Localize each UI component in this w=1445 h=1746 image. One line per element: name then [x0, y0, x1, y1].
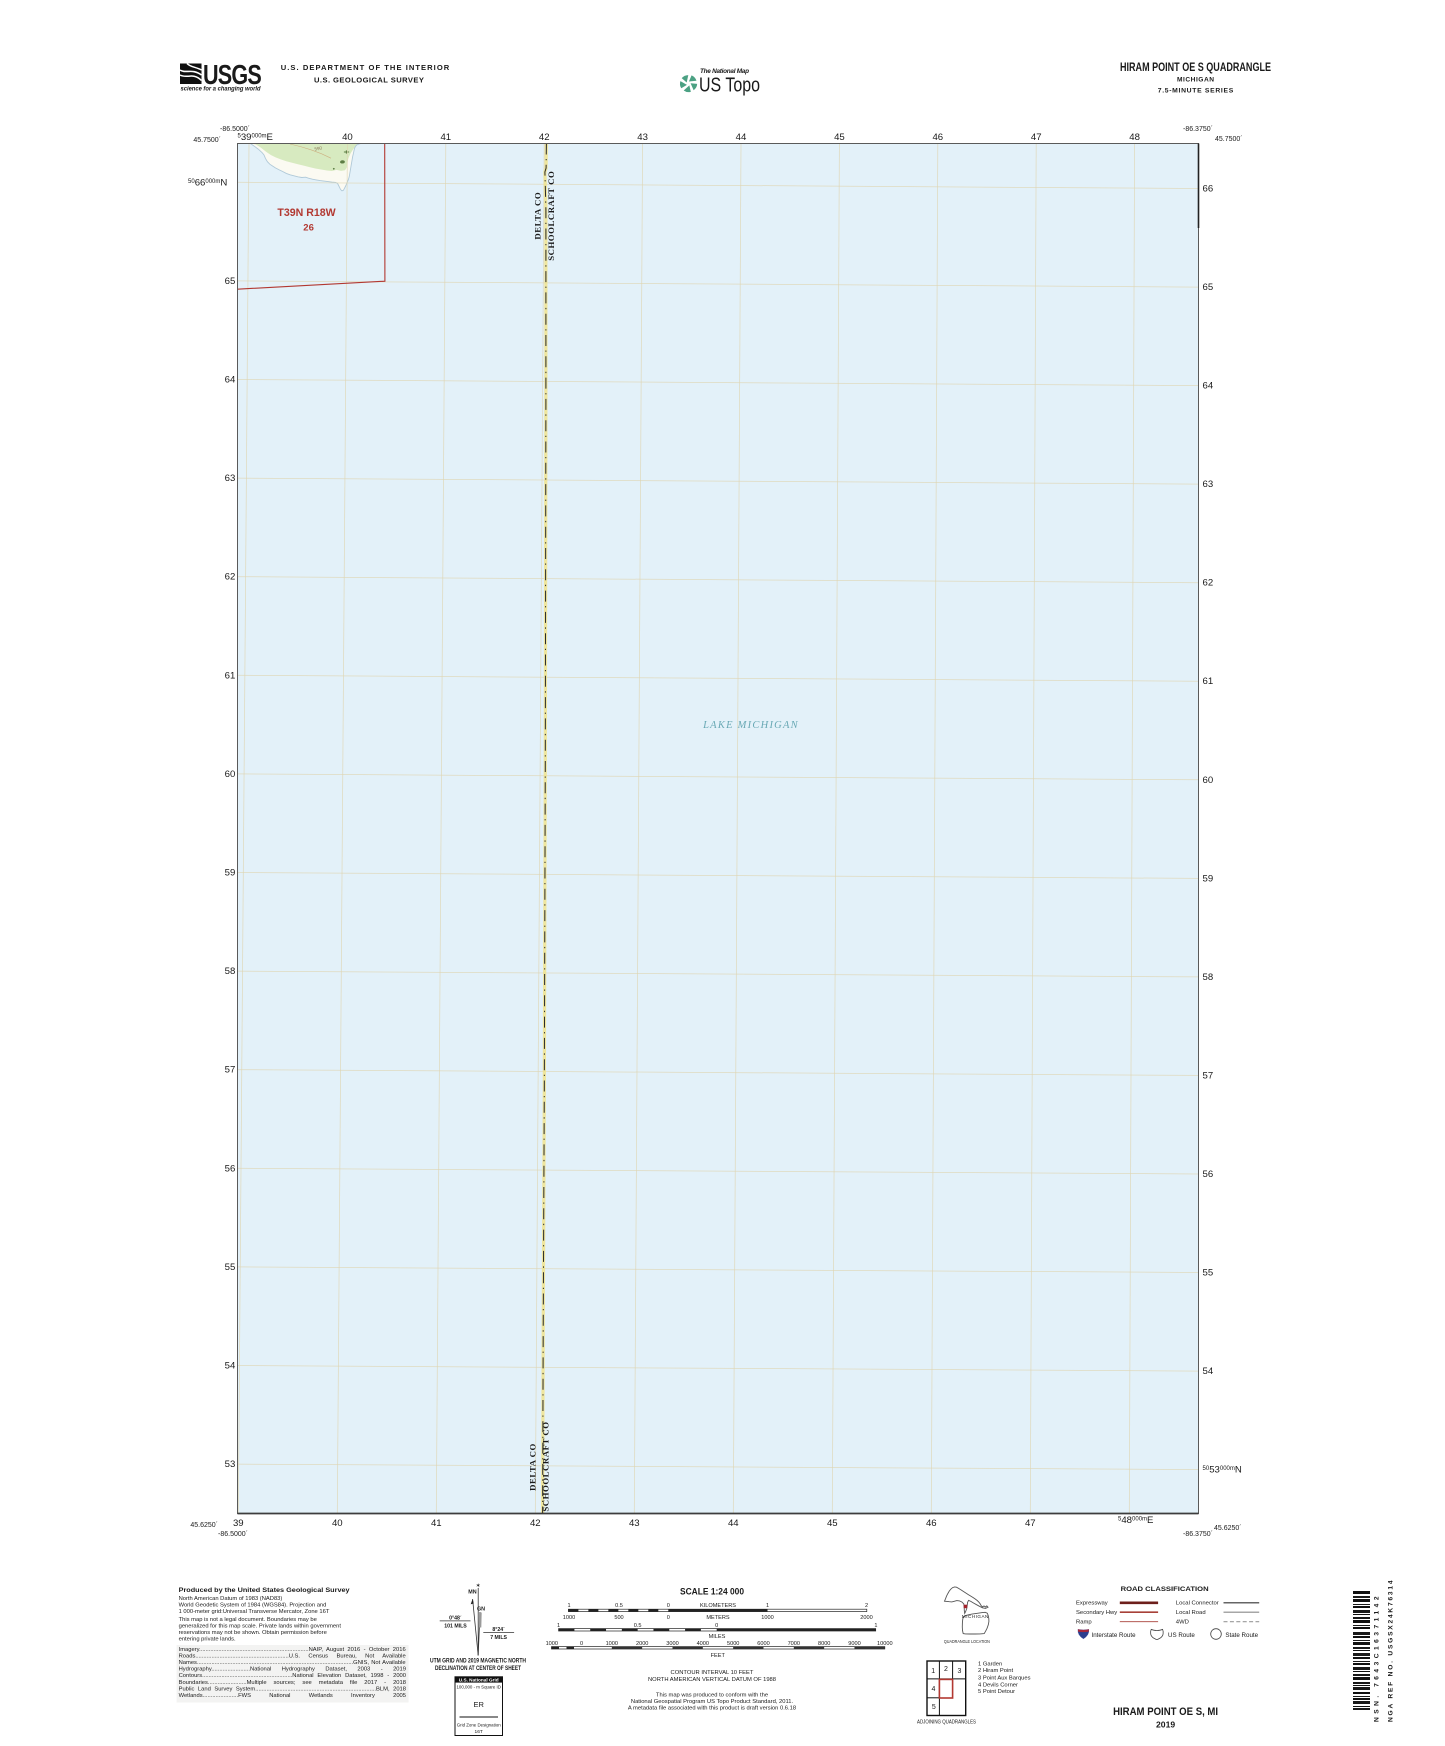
svg-text:Roads.........................: Roads...................................… [179, 1653, 406, 1659]
svg-text:62: 62 [1203, 578, 1214, 589]
svg-text:40: 40 [332, 1518, 343, 1529]
svg-text:SCHOOLCRAFT CO: SCHOOLCRAFT CO [546, 171, 556, 261]
svg-text:46: 46 [926, 1518, 937, 1529]
svg-text:64: 64 [225, 375, 236, 386]
svg-text:-86.3750´: -86.3750´ [1183, 126, 1213, 133]
svg-text:2: 2 [944, 1666, 948, 1673]
svg-text:56: 56 [225, 1163, 236, 1174]
svg-text:45: 45 [834, 132, 845, 143]
svg-text:NGA REF NO. USGSX24K76314: NGA REF NO. USGSX24K76314 [1388, 1579, 1395, 1722]
svg-text:A metadata file associated wit: A metadata file associated with this pro… [628, 1706, 796, 1712]
svg-text:North American Datum of 1983 (: North American Datum of 1983 (NAD83) [179, 1596, 283, 1602]
svg-text:Produced by the United States: Produced by the United States Geological… [179, 1587, 350, 1594]
svg-text:66: 66 [1203, 184, 1214, 195]
svg-text:1 000-meter grid:Universal Tra: 1 000-meter grid:Universal Transverse Me… [179, 1609, 330, 1615]
svg-text:US Route: US Route [1168, 1632, 1195, 1639]
svg-text:2000: 2000 [636, 1641, 648, 1647]
svg-text:45.7500´: 45.7500´ [193, 137, 221, 144]
svg-text:43: 43 [629, 1518, 640, 1529]
svg-text:MICHIGAN: MICHIGAN [1177, 77, 1214, 84]
svg-text:100,000 - m Square ID: 100,000 - m Square ID [456, 1684, 500, 1689]
svg-text:GN: GN [477, 1607, 485, 1613]
svg-text:1: 1 [874, 1623, 877, 1629]
svg-text:1000: 1000 [606, 1641, 618, 1647]
svg-text:42: 42 [530, 1518, 541, 1529]
svg-text:1000: 1000 [761, 1615, 773, 1621]
svg-text:NSN. 7643C16371142: NSN. 7643C16371142 [1374, 1593, 1381, 1722]
svg-text:U.S. National Grid: U.S. National Grid [459, 1677, 499, 1682]
svg-text:101 MILS: 101 MILS [444, 1623, 467, 1629]
svg-text:45: 45 [827, 1518, 838, 1529]
svg-text:0.5: 0.5 [615, 1603, 623, 1609]
svg-text:0: 0 [580, 1641, 583, 1647]
svg-text:42: 42 [539, 132, 550, 143]
svg-text:MICHIGAN: MICHIGAN [962, 1614, 989, 1619]
svg-text:entering private lands.: entering private lands. [179, 1636, 236, 1642]
svg-text:39: 39 [233, 1518, 244, 1529]
svg-text:61: 61 [1203, 676, 1214, 687]
svg-text:5000: 5000 [727, 1641, 739, 1647]
svg-text:41: 41 [440, 132, 451, 143]
svg-text:5 Point Detour: 5 Point Detour [978, 1689, 1015, 1695]
svg-text:Contours......................: Contours................................… [179, 1673, 406, 1679]
svg-text:10000: 10000 [877, 1641, 893, 1647]
svg-text:64: 64 [1203, 381, 1214, 392]
svg-text:1000: 1000 [563, 1615, 575, 1621]
svg-text:State Route: State Route [1225, 1632, 1258, 1639]
svg-text:U.S. GEOLOGICAL SURVEY: U.S. GEOLOGICAL SURVEY [314, 76, 424, 85]
svg-text:8°24´: 8°24´ [492, 1627, 505, 1633]
svg-text:63: 63 [1203, 479, 1214, 490]
svg-text:54: 54 [1203, 1366, 1214, 1377]
svg-text:DECLINATION AT CENTER OF SHEET: DECLINATION AT CENTER OF SHEET [435, 1666, 521, 1672]
svg-text:Boundaries....................: Boundaries........................Multip… [179, 1680, 406, 1686]
svg-text:SCHOOLCRAFT CO: SCHOOLCRAFT CO [540, 1421, 550, 1511]
svg-text:NORTH AMERICAN VERTICAL DATUM: NORTH AMERICAN VERTICAL DATUM OF 1988 [648, 1677, 776, 1683]
svg-text:4000: 4000 [697, 1641, 709, 1647]
svg-text:4WD: 4WD [1176, 1620, 1189, 1626]
svg-text:-86.5000´: -86.5000´ [218, 1531, 248, 1538]
svg-text:Local Road: Local Road [1176, 1610, 1206, 1616]
svg-text:Local Connector: Local Connector [1176, 1601, 1219, 1607]
svg-text:26: 26 [303, 223, 314, 234]
svg-text:54: 54 [225, 1361, 236, 1372]
svg-text:DELTA CO: DELTA CO [532, 192, 542, 240]
svg-text:This map is not a legal docume: This map is not a legal document. Bounda… [179, 1617, 317, 1623]
svg-text:2000: 2000 [860, 1615, 872, 1621]
svg-text:0°48´: 0°48´ [449, 1616, 462, 1622]
svg-text:4 Devils Corner: 4 Devils Corner [978, 1683, 1018, 1689]
svg-text:5: 5 [932, 1704, 936, 1711]
svg-text:4: 4 [931, 1686, 935, 1693]
svg-text:This map was produced to confo: This map was produced to conform with th… [656, 1693, 768, 1699]
svg-text:1: 1 [931, 1668, 935, 1675]
svg-text:45.6250´: 45.6250´ [190, 1522, 218, 1529]
svg-text:63: 63 [225, 473, 236, 484]
svg-text:Wetlands......................: Wetlands......................FWS Nation… [179, 1693, 406, 1699]
svg-text:55: 55 [225, 1262, 236, 1273]
svg-text:7 MILS: 7 MILS [490, 1635, 507, 1641]
svg-text:16T: 16T [475, 1729, 483, 1735]
svg-text:1000: 1000 [546, 1641, 558, 1647]
svg-text:DELTA CO: DELTA CO [528, 1443, 538, 1491]
svg-text:8000: 8000 [818, 1641, 830, 1647]
svg-text:9000: 9000 [848, 1641, 860, 1647]
svg-text:0: 0 [667, 1603, 670, 1609]
svg-text:FEET: FEET [711, 1653, 726, 1659]
svg-text:65: 65 [1203, 282, 1214, 293]
svg-text:3000: 3000 [666, 1641, 678, 1647]
svg-text:59: 59 [225, 868, 236, 879]
svg-text:40: 40 [342, 132, 353, 143]
svg-text:2: 2 [865, 1603, 868, 1609]
svg-text:Imagery.......................: Imagery.................................… [179, 1647, 406, 1653]
svg-text:Hydrography...................: Hydrography........................Natio… [179, 1667, 406, 1673]
svg-text:3: 3 [957, 1668, 961, 1675]
svg-text:6000: 6000 [757, 1641, 769, 1647]
svg-text:45.7500´: 45.7500´ [1215, 136, 1243, 143]
svg-text:HIRAM POINT OE S QUADRANGLE: HIRAM POINT OE S QUADRANGLE [1120, 60, 1271, 74]
svg-text:57: 57 [1203, 1070, 1214, 1081]
svg-text:ROAD CLASSIFICATION: ROAD CLASSIFICATION [1121, 1586, 1209, 1593]
svg-text:60: 60 [1203, 775, 1214, 786]
svg-text:reservations may not be shown.: reservations may not be shown. Obtain pe… [179, 1630, 327, 1636]
svg-text:45.6250´: 45.6250´ [1214, 1525, 1242, 1532]
svg-text:55: 55 [1203, 1268, 1214, 1279]
svg-text:500: 500 [614, 1615, 623, 1621]
svg-text:3 Point Aux Barques: 3 Point Aux Barques [978, 1675, 1031, 1681]
svg-text:46: 46 [932, 132, 943, 143]
svg-text:1 Garden: 1 Garden [978, 1661, 1002, 1667]
svg-text:CONTOUR INTERVAL 10 FEET: CONTOUR INTERVAL 10 FEET [671, 1670, 754, 1676]
svg-text:7000: 7000 [788, 1641, 800, 1647]
svg-text:47: 47 [1025, 1518, 1036, 1529]
svg-text:US Topo: US Topo [699, 75, 760, 97]
svg-text:1: 1 [557, 1623, 560, 1629]
svg-text:ADJOINING QUADRANGLES: ADJOINING QUADRANGLES [917, 1719, 977, 1725]
svg-text:65: 65 [225, 276, 236, 287]
svg-text:QUADRANGLE LOCATION: QUADRANGLE LOCATION [944, 1639, 990, 1645]
svg-text:0.5: 0.5 [634, 1623, 642, 1629]
svg-text:Grid Zone Designation: Grid Zone Designation [457, 1723, 501, 1728]
svg-text:✶: ✶ [476, 1583, 481, 1590]
svg-text:science for a changing world: science for a changing world [181, 86, 261, 93]
svg-text:Secondary Hwy: Secondary Hwy [1076, 1610, 1117, 1616]
svg-text:U.S. DEPARTMENT OF THE INTERIO: U.S. DEPARTMENT OF THE INTERIOR [281, 63, 450, 72]
svg-text:0: 0 [667, 1615, 670, 1621]
svg-text:61: 61 [225, 670, 236, 681]
svg-text:ER: ER [473, 1700, 484, 1709]
svg-text:World Geodetic System of 1984: World Geodetic System of 1984 (WGS84). P… [179, 1602, 327, 1608]
svg-text:56: 56 [1203, 1169, 1214, 1180]
svg-text:43: 43 [637, 132, 648, 143]
svg-text:59: 59 [1203, 873, 1214, 884]
svg-text:Interstate Route: Interstate Route [1092, 1632, 1137, 1639]
svg-text:Expressway: Expressway [1076, 1601, 1108, 1607]
svg-text:METERS: METERS [706, 1615, 730, 1621]
svg-text:53: 53 [225, 1459, 236, 1470]
svg-text:National Geospatial Program US: National Geospatial Program US Topo Prod… [631, 1699, 794, 1705]
svg-text:62: 62 [225, 572, 236, 583]
svg-text:0: 0 [715, 1623, 718, 1629]
svg-text:T39N R18W: T39N R18W [277, 207, 335, 219]
svg-text:2 Hiram Point: 2 Hiram Point [978, 1668, 1014, 1674]
svg-text:LAKE MICHIGAN: LAKE MICHIGAN [702, 720, 799, 731]
svg-text:58: 58 [225, 966, 236, 977]
svg-text:60: 60 [225, 769, 236, 780]
svg-text:SCALE 1:24 000: SCALE 1:24 000 [680, 1586, 744, 1597]
svg-text:HIRAM POINT OE S, MI: HIRAM POINT OE S, MI [1113, 1706, 1218, 1718]
svg-text:2019: 2019 [1156, 1720, 1175, 1730]
svg-text:57: 57 [225, 1065, 236, 1076]
svg-text:Ramp: Ramp [1076, 1620, 1092, 1626]
svg-text:44: 44 [728, 1518, 739, 1529]
svg-text:41: 41 [431, 1518, 442, 1529]
svg-text:1: 1 [766, 1603, 769, 1609]
svg-text:Public Land Survey System.....: Public Land Survey System...............… [179, 1686, 406, 1692]
svg-text:KILOMETERS: KILOMETERS [700, 1603, 736, 1609]
svg-text:generalized for this map scale: generalized for this map scale. Private … [179, 1623, 342, 1629]
svg-text:-86.3750´: -86.3750´ [1183, 1531, 1213, 1538]
svg-text:-86.5000´: -86.5000´ [220, 126, 250, 133]
svg-text:48: 48 [1129, 132, 1140, 143]
svg-text:MILES: MILES [709, 1634, 726, 1640]
svg-text:58: 58 [1203, 972, 1214, 983]
svg-text:47: 47 [1031, 132, 1042, 143]
svg-text:Names.........................: Names...................................… [179, 1660, 406, 1666]
svg-text:MN: MN [468, 1590, 476, 1596]
svg-text:UTM GRID AND 2019 MAGNETIC NOR: UTM GRID AND 2019 MAGNETIC NORTH [430, 1659, 526, 1665]
svg-text:44: 44 [736, 132, 747, 143]
svg-text:1: 1 [567, 1603, 570, 1609]
svg-text:7.5-MINUTE SERIES: 7.5-MINUTE SERIES [1158, 88, 1234, 95]
